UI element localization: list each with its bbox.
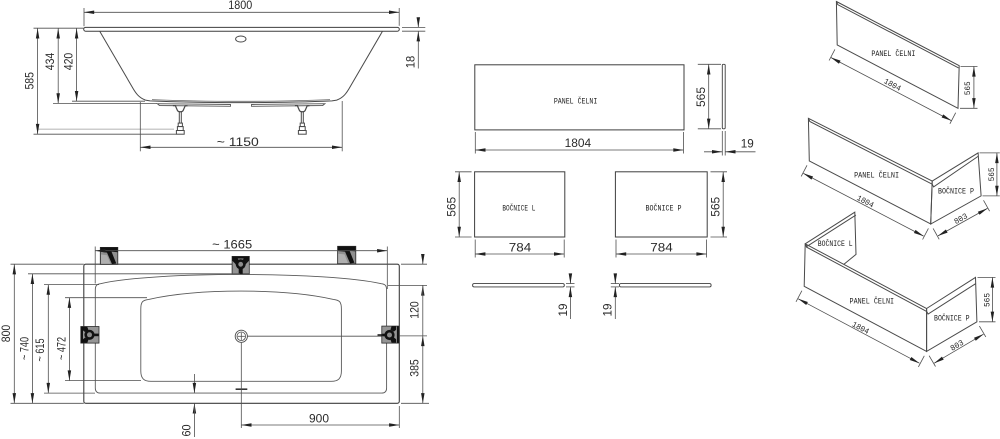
svg-text:565: 565 — [983, 293, 992, 307]
svg-text:~ 1150: ~ 1150 — [217, 135, 259, 149]
svg-text:784: 784 — [650, 240, 673, 254]
svg-text:18: 18 — [404, 55, 418, 68]
svg-text:565: 565 — [964, 81, 973, 95]
svg-text:PANEL ČELNI: PANEL ČELNI — [854, 169, 899, 180]
svg-text:1804: 1804 — [565, 136, 592, 150]
svg-text:PANEL ČELNI: PANEL ČELNI — [850, 296, 895, 307]
svg-text:BOČNICE P: BOČNICE P — [938, 185, 974, 196]
svg-text:BOČNICE P: BOČNICE P — [934, 312, 970, 323]
svg-text:565: 565 — [445, 196, 459, 216]
svg-text:60: 60 — [179, 424, 193, 436]
svg-text:~ 615: ~ 615 — [33, 338, 47, 361]
svg-text:19: 19 — [741, 137, 754, 151]
svg-text:19: 19 — [601, 303, 615, 316]
svg-text:800: 800 — [0, 324, 13, 342]
svg-text:~ 1665: ~ 1665 — [212, 237, 252, 251]
svg-text:420: 420 — [62, 52, 76, 70]
svg-text:~ 740: ~ 740 — [17, 337, 31, 360]
svg-text:565: 565 — [709, 196, 723, 216]
svg-text:19: 19 — [556, 303, 570, 316]
svg-text:900: 900 — [309, 411, 329, 425]
svg-text:565: 565 — [694, 87, 708, 107]
svg-text:BOČNICE L: BOČNICE L — [502, 203, 535, 214]
svg-text:1800: 1800 — [228, 0, 252, 12]
svg-text:~ 472: ~ 472 — [54, 337, 68, 360]
svg-text:BOČNICE P: BOČNICE P — [646, 203, 682, 214]
svg-text:120: 120 — [408, 301, 422, 319]
svg-text:PANEL ČELNI: PANEL ČELNI — [871, 48, 915, 59]
svg-text:PANEL ČELNI: PANEL ČELNI — [554, 95, 598, 106]
svg-text:BOČNICE L: BOČNICE L — [818, 238, 853, 249]
svg-text:784: 784 — [509, 240, 532, 254]
svg-text:385: 385 — [408, 359, 422, 377]
svg-text:565: 565 — [988, 167, 997, 181]
svg-text:585: 585 — [23, 72, 37, 90]
svg-text:434: 434 — [43, 52, 57, 70]
